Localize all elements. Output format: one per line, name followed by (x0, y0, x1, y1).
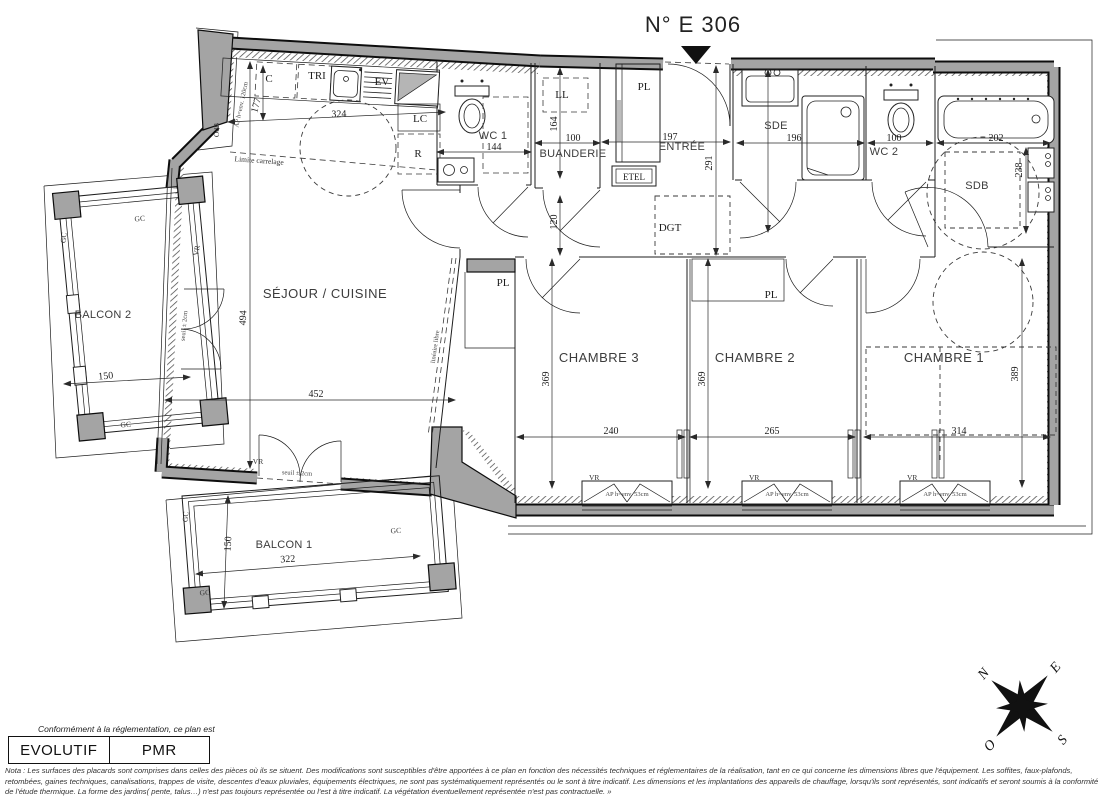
sdb-fixtures (938, 96, 1054, 212)
dim-chambre2-h: 369 (697, 372, 708, 387)
annotation-ap-w2: AP h=env. 53cm (765, 491, 808, 498)
wc2-fixtures (884, 84, 918, 138)
annotation-vr-south: VR (253, 457, 263, 466)
pl-label-chambre3: PL (497, 277, 510, 289)
sde-fixtures (742, 70, 864, 181)
dim-dgt: 120 (549, 215, 560, 230)
balcony-1 (176, 475, 456, 614)
kitchen-sink-icon (330, 66, 362, 102)
dim-chambre2-w: 265 (765, 426, 780, 437)
dim-sejour-h: 494 (238, 310, 250, 326)
floor-plan-drawing: SÉJOUR / CUISINE CHAMBRE 3 CHAMBRE 2 CHA… (0, 0, 1106, 800)
room-label-chambre2: CHAMBRE 2 (715, 350, 795, 365)
annotation-vr-w1: VR (589, 473, 599, 482)
room-label-chambre3: CHAMBRE 3 (559, 350, 639, 365)
dim-sejour-w: 452 (309, 389, 324, 400)
compass-e: E (1047, 659, 1065, 676)
annotation-ap-w1: AP h=env. 53cm (605, 491, 648, 498)
gtl-duct (617, 100, 621, 142)
entry-door-arc (668, 64, 730, 126)
legend-boxes: EVOLUTIF PMR (8, 736, 210, 764)
dim-sdb-h: 238 (1014, 163, 1025, 178)
dim-kitchen-width: 324 (331, 109, 346, 121)
annotation-gc-b1-left: GC (181, 511, 191, 522)
legend-evolutif: EVOLUTIF (9, 737, 110, 763)
dim-chambre1-h: 389 (1010, 367, 1021, 382)
dim-balcon1-h: 150 (223, 536, 235, 552)
dim-sdb-w: 202 (989, 133, 1004, 144)
annotation-gc-b2-top: GC (134, 213, 145, 223)
dim-buanderie-w: 100 (566, 133, 581, 144)
dim-chambre1-w: 314 (952, 426, 967, 437)
room-label-balcon1: BALCON 1 (256, 539, 313, 551)
nota-block: Nota : Les surfaces des placards sont co… (5, 766, 1103, 798)
kitchen-label-tri: TRI (308, 70, 326, 82)
annotation-seuil-south: seuil ± 2cm (282, 469, 313, 478)
annotation-seuil-west: seuil ± 2cm (180, 310, 190, 341)
dim-kitchen-depth: 177 (249, 97, 264, 114)
compass-n: N (975, 665, 994, 683)
exterior-walls (161, 30, 1054, 518)
laundry-label-ll: LL (555, 89, 569, 101)
annotation-libre: linéaire libre (430, 330, 442, 364)
room-label-balcon2: BALCON 2 (75, 309, 132, 321)
dim-balcon1-w: 322 (280, 553, 296, 565)
corner-block-top-left (198, 30, 233, 130)
dim-wc2: 100 (887, 133, 902, 144)
pl-label-chambre2: PL (765, 289, 778, 301)
annotation-odb: OdB (212, 123, 221, 137)
turning-circle-sdb (927, 137, 1039, 249)
dim-chambre3-h: 369 (541, 372, 552, 387)
room-label-wc2: WC 2 (870, 146, 899, 158)
kitchen-label-r: R (414, 148, 422, 160)
page-title: N° E 306 (645, 12, 741, 37)
legend-pmr: PMR (110, 737, 210, 763)
kitchen-label-c: C (265, 73, 272, 85)
kitchen-label-lc: LC (413, 113, 427, 125)
title-block: N° E 306 (645, 12, 741, 64)
kitchen-label-ev: EV (375, 76, 390, 88)
room-label-chambre1: CHAMBRE 1 (904, 350, 984, 365)
annotation-gc-b1-right: GC (390, 526, 401, 536)
placard-block (467, 259, 515, 272)
compass-o: O (981, 737, 999, 754)
nota-line-1: Nota : Les surfaces des placards sont co… (5, 766, 1103, 777)
laundry-label-etel: ETEL (623, 172, 645, 182)
annotation-gc-b1-bottom: GC (199, 588, 210, 598)
washbasin-icon-sde (742, 70, 798, 107)
room-label-sdb: SDB (965, 180, 989, 192)
toilet-icon-wc1 (455, 80, 489, 134)
annotation-vr-west: VR (191, 245, 202, 257)
room-label-dgt: DGT (659, 222, 682, 234)
dim-balcon2: 150 (98, 370, 114, 382)
kitchen-corner-unit (395, 70, 440, 106)
room-label-buanderie: BUANDERIE (540, 148, 607, 160)
compass-rose: N E S O (942, 627, 1104, 788)
annotation-limite-carrelage: Limite carrelage (234, 154, 285, 166)
nota-line-3: de l'étude thermique. La forme des jardi… (5, 787, 1103, 798)
dim-sde: 196 (787, 133, 802, 144)
toilet-icon-wc2 (884, 84, 918, 138)
dim-wc1: 144 (487, 142, 502, 153)
pl-label-entree: PL (638, 81, 651, 93)
dim-entree-h: 291 (704, 156, 715, 171)
legend-intro: Conformément à la réglementation, ce pla… (38, 724, 238, 734)
annotation-gc-b2-left: GC (58, 232, 68, 243)
annotation-vr-w2: VR (749, 473, 759, 482)
entrance-marker-icon (681, 46, 711, 64)
legend-block: Conformément à la réglementation, ce pla… (8, 724, 238, 764)
room-label-sejour: SÉJOUR / CUISINE (263, 286, 387, 301)
room-label-sde: SDE (764, 120, 788, 132)
windows (157, 168, 990, 510)
room-label-wc1: WC 1 (479, 130, 508, 142)
nota-line-2: retombées, gaines techniques, canalisati… (5, 777, 1103, 788)
compass-s: S (1055, 733, 1071, 748)
dim-buanderie-h: 164 (549, 117, 560, 132)
kitchen-c-cabinet (255, 62, 297, 98)
annotation-gc-b2-bottom: GC (120, 419, 131, 429)
dim-chambre3-w: 240 (604, 426, 619, 437)
washbasin-icon-wc1 (438, 158, 474, 182)
doors (181, 62, 988, 484)
shower-icon (802, 96, 864, 180)
annotation-ap-w3: AP h=env. 53cm (923, 491, 966, 498)
turning-circle-kitchen (300, 100, 396, 196)
annotation-vr-w3: VR (907, 473, 917, 482)
dim-entree-w: 197 (663, 132, 678, 143)
floor-plan-page: SÉJOUR / CUISINE CHAMBRE 3 CHAMBRE 2 CHA… (0, 0, 1106, 800)
turning-circle-chambre1 (933, 252, 1033, 352)
